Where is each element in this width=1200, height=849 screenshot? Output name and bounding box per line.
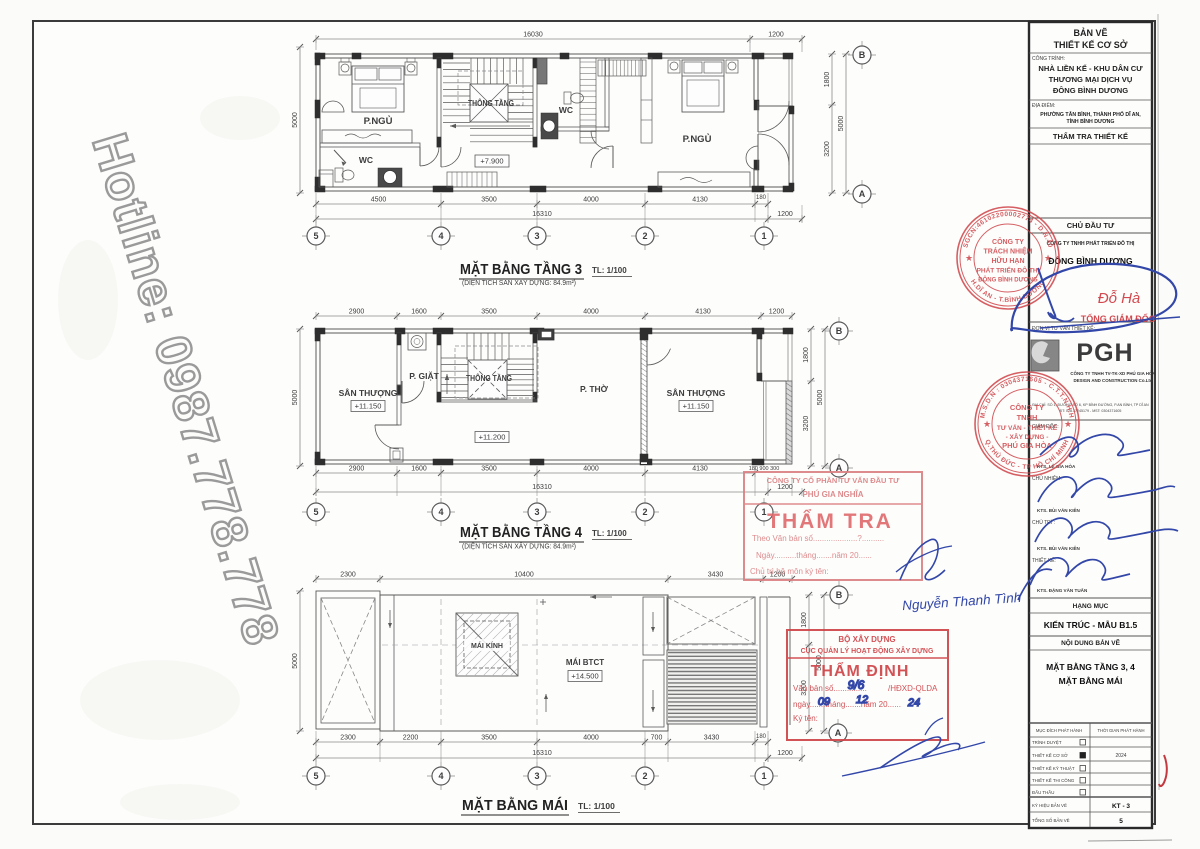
svg-text:+11.150: +11.150 — [355, 402, 382, 411]
svg-text:THIẾT KẾ CƠ SỞ: THIẾT KẾ CƠ SỞ — [1032, 753, 1068, 758]
svg-text:2900: 2900 — [349, 309, 365, 316]
svg-text:SÂN THƯỢNG: SÂN THƯỢNG — [339, 387, 398, 398]
svg-text:★: ★ — [1044, 253, 1052, 263]
svg-text:P. THỜ: P. THỜ — [580, 383, 609, 394]
svg-text:3200: 3200 — [803, 416, 810, 432]
svg-text:CHỦ ĐẦU TƯ: CHỦ ĐẦU TƯ — [1067, 220, 1115, 230]
svg-text:2: 2 — [642, 507, 647, 517]
svg-text:Ký tên:: Ký tên: — [793, 714, 818, 723]
svg-text:4: 4 — [438, 231, 443, 241]
svg-text:+11.200: +11.200 — [479, 433, 506, 442]
svg-text:16310: 16310 — [532, 484, 552, 491]
svg-text:1800: 1800 — [803, 347, 810, 363]
svg-text:A: A — [859, 189, 866, 199]
svg-text:3500: 3500 — [481, 466, 497, 473]
svg-text:THẨM TRA THIẾT KẾ: THẨM TRA THIẾT KẾ — [1053, 131, 1128, 141]
svg-text:2300: 2300 — [340, 735, 356, 742]
svg-text:TL: 1/100: TL: 1/100 — [592, 266, 627, 275]
svg-text:THỜI GIAN PHÁT HÀNH: THỜI GIAN PHÁT HÀNH — [1097, 728, 1144, 733]
svg-text:/HĐXD-QLDA: /HĐXD-QLDA — [888, 684, 938, 693]
svg-text:KÝ HIỆU BẢN VẼ: KÝ HIỆU BẢN VẼ — [1032, 803, 1067, 808]
svg-text:1200: 1200 — [777, 750, 793, 757]
svg-text:4130: 4130 — [692, 466, 708, 473]
svg-text:4130: 4130 — [692, 197, 708, 204]
svg-text:THIẾT KẾ KỸ THUẬT: THIẾT KẾ KỸ THUẬT — [1032, 766, 1075, 771]
svg-text:5: 5 — [313, 507, 318, 517]
svg-text:KIẾN TRÚC - MẪU B1.5: KIẾN TRÚC - MẪU B1.5 — [1044, 619, 1138, 630]
svg-text:MẶT BẰNG TẦNG 3: MẶT BẰNG TẦNG 3 — [460, 260, 582, 278]
svg-text:KTS. ĐẶNG VĂN TUẤN: KTS. ĐẶNG VĂN TUẤN — [1037, 587, 1088, 593]
svg-text:5000: 5000 — [292, 653, 299, 669]
svg-text:2300: 2300 — [340, 572, 356, 579]
svg-text:9/6: 9/6 — [848, 678, 865, 692]
svg-text:CÔNG TY TNHH TV-TK-XD PHÚ GIA: CÔNG TY TNHH TV-TK-XD PHÚ GIA HÒA — [1070, 371, 1156, 376]
svg-text:4: 4 — [438, 771, 443, 781]
svg-text:12: 12 — [856, 694, 868, 706]
svg-text:5000: 5000 — [292, 390, 299, 406]
svg-text:1200: 1200 — [777, 484, 793, 491]
svg-text:CÔNG TY: CÔNG TY — [1010, 403, 1044, 412]
svg-text:ĐẤU THẦU: ĐẤU THẦU — [1032, 790, 1054, 795]
svg-text:NHÀ LIỀN KẾ - KHU DÂN CƯ: NHÀ LIỀN KẾ - KHU DÂN CƯ — [1038, 63, 1143, 73]
svg-text:24: 24 — [907, 697, 920, 709]
svg-text:B: B — [859, 50, 866, 60]
svg-text:PGH: PGH — [1076, 339, 1133, 367]
svg-text:PHÁT TRIỂN ĐÔ THỊ: PHÁT TRIỂN ĐÔ THỊ — [977, 266, 1040, 275]
svg-text:16310: 16310 — [532, 750, 552, 757]
svg-text:B: B — [836, 590, 843, 600]
svg-text:P.NGỦ: P.NGỦ — [364, 115, 393, 127]
svg-text:700: 700 — [651, 735, 663, 742]
svg-text:3: 3 — [534, 507, 539, 517]
svg-text:2900: 2900 — [349, 466, 365, 473]
svg-text:16310: 16310 — [532, 211, 552, 218]
svg-text:ĐÔNG BÌNH DƯƠNG: ĐÔNG BÌNH DƯƠNG — [1053, 86, 1128, 95]
svg-text:THÔNG TẦNG: THÔNG TẦNG — [468, 98, 514, 108]
svg-text:4: 4 — [438, 507, 443, 517]
svg-text:WC: WC — [559, 105, 573, 115]
svg-text:BẢN VẼ: BẢN VẼ — [1073, 27, 1107, 38]
svg-text:THƯƠNG MẠI DỊCH VỤ: THƯƠNG MẠI DỊCH VỤ — [1049, 75, 1133, 84]
svg-text:MỤC ĐÍCH PHÁT HÀNH: MỤC ĐÍCH PHÁT HÀNH — [1036, 728, 1082, 733]
svg-text:1800: 1800 — [824, 72, 831, 88]
svg-text:KTS. BÙI VĂN KIÊN: KTS. BÙI VĂN KIÊN — [1037, 506, 1081, 513]
svg-text:★: ★ — [965, 253, 973, 263]
svg-text:MẶT BẰNG MÁI: MẶT BẰNG MÁI — [1059, 676, 1123, 686]
svg-text:MẶT BẰNG TẦNG 4: MẶT BẰNG TẦNG 4 — [460, 523, 583, 541]
svg-text:- XÂY DỰNG -: - XÂY DỰNG - — [1006, 432, 1049, 441]
svg-text:1: 1 — [761, 231, 766, 241]
svg-text:1: 1 — [761, 507, 766, 517]
svg-text:1: 1 — [761, 771, 766, 781]
svg-text:CÔNG TRÌNH:: CÔNG TRÌNH: — [1032, 55, 1065, 62]
svg-text:PHÚ GIA NGHĨA: PHÚ GIA NGHĨA — [802, 490, 863, 499]
svg-text:5: 5 — [1119, 818, 1123, 825]
svg-text:TL: 1/100: TL: 1/100 — [592, 529, 627, 538]
svg-text:180: 180 — [756, 195, 767, 201]
svg-text:4000: 4000 — [583, 466, 599, 473]
svg-text:1200: 1200 — [768, 32, 784, 39]
svg-text:MẶT BẰNG MÁI: MẶT BẰNG MÁI — [462, 796, 568, 814]
svg-text:KTS. BÙI VĂN KIÊN: KTS. BÙI VĂN KIÊN — [1037, 544, 1081, 551]
svg-text:NỘI DUNG BẢN VẼ: NỘI DUNG BẢN VẼ — [1061, 638, 1121, 647]
svg-text:KT - 3: KT - 3 — [1112, 803, 1130, 810]
svg-text:DESIGN AND CONSTRUCTION Co.Ltd: DESIGN AND CONSTRUCTION Co.Ltd — [1073, 378, 1152, 383]
svg-text:TRÌNH DUYỆT: TRÌNH DUYỆT — [1032, 740, 1062, 745]
svg-text:1200: 1200 — [769, 309, 785, 316]
svg-text:MÁI BTCT: MÁI BTCT — [566, 658, 604, 667]
svg-text:4130: 4130 — [695, 309, 711, 316]
svg-text:3500: 3500 — [481, 309, 497, 316]
svg-text:4500: 4500 — [371, 197, 387, 204]
svg-text:THẨM TRA: THẨM TRA — [767, 510, 893, 533]
svg-text:TỔNG SỐ BẢN VẼ: TỔNG SỐ BẢN VẼ — [1032, 818, 1070, 823]
svg-text:CÔNG TY CỔ PHẦN TƯ VẤN ĐẦU TƯ: CÔNG TY CỔ PHẦN TƯ VẤN ĐẦU TƯ — [767, 475, 901, 485]
svg-text:CÔNG TY: CÔNG TY — [992, 237, 1024, 246]
svg-text:3: 3 — [534, 771, 539, 781]
svg-text:CHỦ TRÌ :: CHỦ TRÌ : — [1032, 519, 1055, 526]
svg-text:CỤC QUẢN LÝ HOẠT ĐỘNG XÂY DỰNG: CỤC QUẢN LÝ HOẠT ĐỘNG XÂY DỰNG — [801, 646, 934, 655]
svg-text:ĐÔNG BÌNH DƯƠNG: ĐÔNG BÌNH DƯƠNG — [978, 276, 1038, 284]
svg-text:180: 180 — [756, 734, 767, 740]
svg-text:09: 09 — [818, 696, 830, 708]
svg-text:ĐỊA ĐIỂM:: ĐỊA ĐIỂM: — [1032, 102, 1055, 109]
svg-text:B: B — [836, 326, 843, 336]
svg-text:Chủ trì bộ môn ký tên:: Chủ trì bộ môn ký tên: — [750, 567, 829, 576]
svg-text:4000: 4000 — [583, 735, 599, 742]
svg-text:2200: 2200 — [403, 735, 419, 742]
svg-text:P.NGỦ: P.NGỦ — [683, 133, 712, 145]
svg-text:3500: 3500 — [481, 735, 497, 742]
svg-text:4000: 4000 — [583, 309, 599, 316]
svg-text:ĐỊA CHỈ: SỐ 1, ĐƯỜNG SỐ 6, KP: ĐỊA CHỈ: SỐ 1, ĐƯỜNG SỐ 6, KP BÌNH ĐƯỜNG… — [1032, 402, 1149, 407]
svg-text:TL: 1/100: TL: 1/100 — [578, 801, 615, 811]
svg-text:+11.150: +11.150 — [683, 402, 710, 411]
svg-text:10400: 10400 — [514, 572, 534, 579]
svg-text:TNHH: TNHH — [1017, 413, 1038, 422]
svg-text:TRÁCH NHIỆM: TRÁCH NHIỆM — [984, 247, 1033, 256]
svg-text:3500: 3500 — [481, 197, 497, 204]
svg-text:PHƯỜNG TÂN BÌNH, THÀNH PHỐ DĨ: PHƯỜNG TÂN BÌNH, THÀNH PHỐ DĨ AN, — [1040, 110, 1141, 118]
svg-text:MẶT BẰNG TẦNG 3, 4: MẶT BẰNG TẦNG 3, 4 — [1046, 662, 1135, 672]
svg-text:3200: 3200 — [824, 141, 831, 157]
svg-text:2: 2 — [642, 771, 647, 781]
svg-text:1200: 1200 — [777, 211, 793, 218]
svg-text:TỈNH BÌNH DƯƠNG: TỈNH BÌNH DƯƠNG — [1067, 117, 1115, 125]
svg-text:★: ★ — [983, 419, 991, 429]
svg-text:Theo Văn bản số...............: Theo Văn bản số....................?....… — [752, 534, 884, 543]
svg-text:HẠNG MỤC: HẠNG MỤC — [1073, 603, 1109, 610]
svg-text:2: 2 — [642, 231, 647, 241]
svg-text:5000: 5000 — [838, 116, 845, 132]
svg-text:ngày.......tháng.......năm 20.: ngày.......tháng.......năm 20...... — [793, 700, 901, 709]
svg-text:THÔNG TẦNG: THÔNG TẦNG — [466, 373, 512, 383]
svg-text:Đỗ Hà: Đỗ Hà — [1098, 290, 1141, 307]
svg-text:Ngày..........tháng.......năm: Ngày..........tháng.......năm 20...... — [756, 551, 872, 560]
svg-text:3430: 3430 — [704, 735, 720, 742]
svg-text:1600: 1600 — [411, 466, 427, 473]
svg-text:1800: 1800 — [801, 612, 808, 628]
svg-text:1600: 1600 — [411, 309, 427, 316]
svg-text:PHÚ GIA HÒA: PHÚ GIA HÒA — [1002, 441, 1052, 450]
svg-text:16030: 16030 — [523, 32, 543, 39]
svg-text:BỘ XÂY DỰNG: BỘ XÂY DỰNG — [838, 635, 895, 644]
svg-text:WC: WC — [359, 155, 373, 165]
svg-text:5: 5 — [313, 771, 318, 781]
svg-text:2024: 2024 — [1115, 753, 1126, 759]
svg-text:★: ★ — [1064, 419, 1072, 429]
svg-text:+14.500: +14.500 — [571, 672, 598, 681]
svg-text:THIẾT KẾ THI CÔNG: THIẾT KẾ THI CÔNG — [1032, 778, 1075, 783]
svg-text:A: A — [835, 728, 842, 738]
svg-text:+7.900: +7.900 — [480, 157, 503, 166]
svg-text:4000: 4000 — [583, 197, 599, 204]
svg-text:5000: 5000 — [292, 112, 299, 128]
svg-text:P. GIẶT: P. GIẶT — [409, 371, 439, 381]
svg-text:THIẾT KẾ CƠ SỞ: THIẾT KẾ CƠ SỞ — [1054, 39, 1128, 50]
svg-text:(DIỆN TÍCH SÀN XÂY DỰNG: 84.9m: (DIỆN TÍCH SÀN XÂY DỰNG: 84.9m²) — [462, 278, 576, 287]
svg-text:5000: 5000 — [817, 390, 824, 406]
svg-text:SÂN THƯỢNG: SÂN THƯỢNG — [667, 387, 726, 398]
svg-text:MÁI KÍNH: MÁI KÍNH — [471, 641, 503, 650]
svg-text:(DIỆN TÍCH SÀN XÂY DỰNG: 84.9m: (DIỆN TÍCH SÀN XÂY DỰNG: 84.9m²) — [462, 542, 576, 551]
svg-text:CÔNG TY TNHH PHÁT TRIỂN ĐÔ THỊ: CÔNG TY TNHH PHÁT TRIỂN ĐÔ THỊ — [1047, 239, 1135, 247]
svg-text:5: 5 — [313, 231, 318, 241]
svg-text:HỮU HẠN: HỮU HẠN — [991, 256, 1024, 265]
svg-text:3430: 3430 — [708, 572, 724, 579]
svg-text:3: 3 — [534, 231, 539, 241]
